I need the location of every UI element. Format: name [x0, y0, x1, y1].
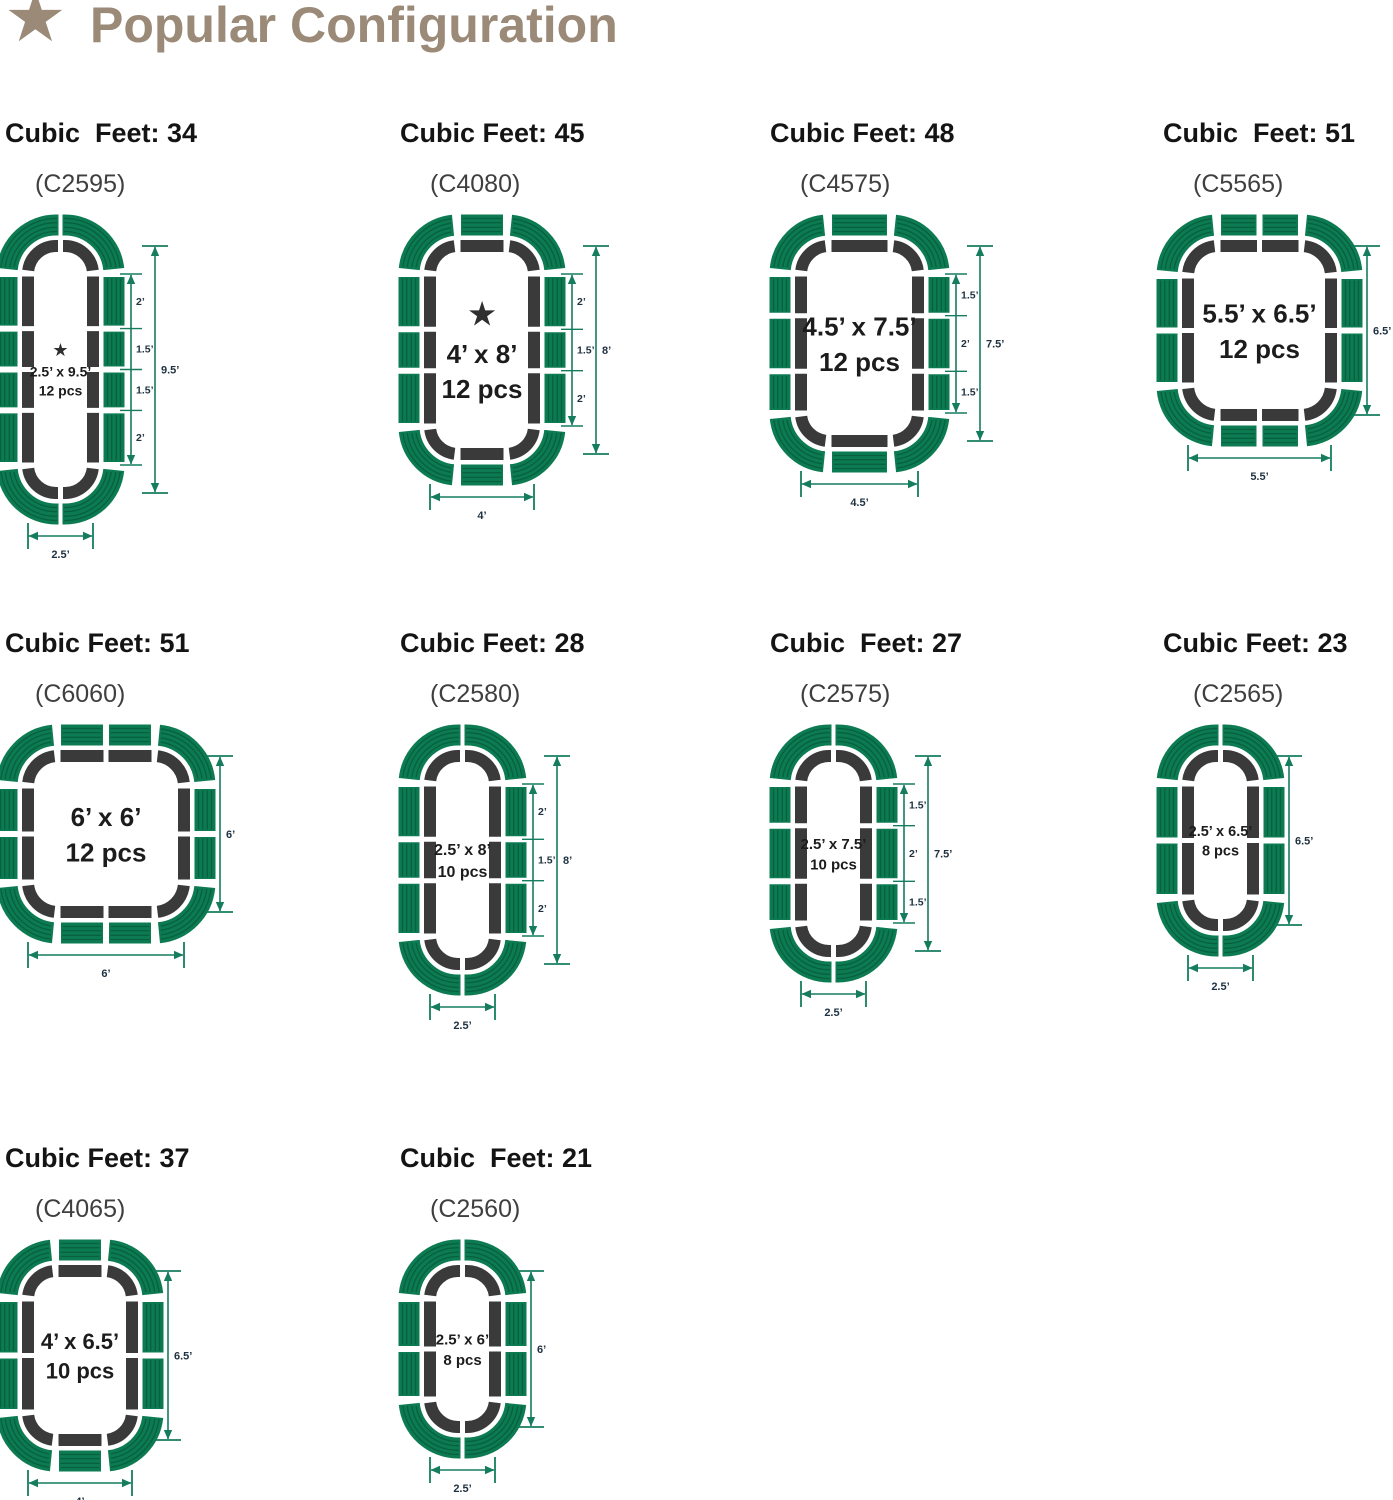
bed-labels: 4’ x 6.5’10 pcs [41, 1329, 119, 1384]
bed-panels [1, 729, 212, 940]
bed-size-label: 2.5’ x 9.5’ [30, 364, 92, 380]
bed-outline [801, 756, 866, 951]
bed-size-label: 4’ x 6.5’ [41, 1329, 119, 1354]
config-diagram: 4’ x 6.5’10 pcs6.5’4’ [0, 1233, 214, 1500]
config-diagram: 2.5’ x 7.5’10 pcs1.5’2’1.5’7.5’2.5’ [767, 718, 984, 1039]
segment-dimension-label: 1.5’ [577, 345, 595, 357]
width-dimension-label: 6’ [101, 968, 110, 980]
config-model-label: (C4575) [800, 170, 890, 199]
config-diagram: 6’ x 6’12 pcs6’6’ [0, 718, 266, 1000]
star-icon: ★ [4, 0, 67, 52]
config-diagram: 5.5’ x 6.5’12 pcs6.5’5.5’ [1154, 208, 1393, 503]
config-heading: Cubic Feet: 21 [400, 1143, 592, 1174]
config-heading: Cubic Feet: 34 [5, 118, 197, 149]
config-diagram: 2.5’ x 6’8 pcs6’2.5’ [396, 1233, 577, 1500]
segment-dimension-label: 1.5’ [909, 897, 927, 909]
height-dimension-label: 6.5’ [174, 1351, 192, 1363]
height-dimension-label: 8’ [602, 345, 611, 357]
width-dimension-label: 2.5’ [453, 1483, 471, 1495]
segment-dimension-label: 2’ [136, 432, 145, 444]
bed-size-label: 4.5’ x 7.5’ [802, 312, 916, 342]
bed-panels [403, 729, 523, 992]
config-diagram: ★4’ x 8’12 pcs2’1.5’2’8’4’ [396, 208, 652, 542]
bed-outline [430, 756, 495, 964]
bed-pcs-label: 12 pcs [1219, 334, 1300, 364]
width-dimension-label: 4’ [477, 510, 486, 522]
segment-dimension-label: 2’ [909, 848, 918, 860]
bed-labels: 2.5’ x 8’10 pcs [434, 842, 491, 881]
config-heading: Cubic Feet: 51 [5, 628, 190, 659]
width-dimension-label: 2.5’ [1211, 981, 1229, 993]
config-model-label: (C4065) [35, 1195, 125, 1224]
config-heading: Cubic Feet: 51 [1163, 118, 1355, 149]
bed-pcs-label: 12 pcs [66, 837, 147, 867]
config-model-label: (C6060) [35, 680, 125, 709]
config-diagram: 4.5’ x 7.5’12 pcs1.5’2’1.5’7.5’4.5’ [767, 208, 1036, 529]
star-icon: ★ [52, 340, 68, 360]
bed-pcs-label: 10 pcs [46, 1359, 115, 1384]
segment-dimension-label: 1.5’ [136, 384, 154, 396]
config-model-label: (C2580) [430, 680, 520, 709]
bed-outline [28, 756, 184, 912]
segment-dimension-label: 2’ [538, 806, 547, 818]
bed-labels: 2.5’ x 7.5’10 pcs [801, 836, 867, 873]
width-dimension-label: 2.5’ [824, 1007, 842, 1019]
bed-outline [1188, 756, 1253, 925]
bed-outline [1188, 246, 1331, 415]
bed-outline [28, 1271, 132, 1440]
height-dimension-label: 6’ [537, 1344, 546, 1356]
config-heading: Cubic Feet: 23 [1163, 628, 1348, 659]
config-diagram: ★2.5’ x 9.5’12 pcs2’1.5’1.5’2’9.5’2.5’ [0, 208, 211, 581]
config-model-label: (C2560) [430, 1195, 520, 1224]
segment-dimension-label: 1.5’ [961, 387, 979, 399]
width-dimension-label: 4’ [75, 1496, 84, 1500]
config-heading: Cubic Feet: 45 [400, 118, 585, 149]
bed-size-label: 2.5’ x 7.5’ [801, 836, 867, 853]
page-title: Popular Configuration [90, 0, 618, 54]
bed-outline [801, 246, 918, 441]
config-diagram: 2.5’ x 8’10 pcs2’1.5’2’8’2.5’ [396, 718, 613, 1052]
segment-dimension-label: 2’ [577, 393, 586, 405]
bed-size-label: 6’ x 6’ [71, 802, 142, 832]
config-heading: Cubic Feet: 48 [770, 118, 955, 149]
bed-labels: ★4’ x 8’12 pcs [442, 295, 523, 404]
config-heading: Cubic Feet: 27 [770, 628, 962, 659]
bed-pcs-label: 12 pcs [442, 374, 523, 404]
bed-labels: ★2.5’ x 9.5’12 pcs [30, 340, 92, 398]
bed-pcs-label: 12 pcs [819, 347, 900, 377]
height-dimension-label: 6.5’ [1373, 326, 1391, 338]
dimensions: 6’2.5’ [430, 1271, 546, 1495]
height-dimension-label: 8’ [563, 855, 572, 867]
bed-labels: 2.5’ x 6.5’8 pcs [1189, 824, 1253, 860]
segment-dimension-label: 2’ [577, 296, 586, 308]
config-model-label: (C5565) [1193, 170, 1283, 199]
segment-dimension-label: 1.5’ [136, 344, 154, 356]
bed-pcs-label: 10 pcs [810, 856, 857, 873]
bed-pcs-label: 12 pcs [39, 382, 83, 398]
bed-pcs-label: 8 pcs [1202, 844, 1239, 860]
width-dimension-label: 2.5’ [453, 1020, 471, 1032]
config-heading: Cubic Feet: 28 [400, 628, 585, 659]
height-dimension-label: 6.5’ [1295, 836, 1313, 848]
bed-panels [774, 729, 894, 979]
config-heading: Cubic Feet: 37 [5, 1143, 190, 1174]
bed-labels: 4.5’ x 7.5’12 pcs [802, 312, 916, 377]
bed-outline [430, 1271, 495, 1427]
bed-pcs-label: 8 pcs [443, 1352, 481, 1369]
config-model-label: (C2565) [1193, 680, 1283, 709]
height-dimension-label: 7.5’ [986, 339, 1004, 351]
height-dimension-label: 7.5’ [934, 849, 952, 861]
bed-size-label: 2.5’ x 6.5’ [1189, 824, 1253, 840]
segment-dimension-label: 1.5’ [538, 855, 556, 867]
bed-panels [403, 1244, 523, 1455]
bed-labels: 5.5’ x 6.5’12 pcs [1202, 299, 1316, 364]
bed-panels [1161, 219, 1359, 443]
width-dimension-label: 4.5’ [850, 497, 868, 509]
star-icon: ★ [467, 295, 497, 333]
config-diagram: 2.5’ x 6.5’8 pcs6.5’2.5’ [1154, 718, 1335, 1013]
height-dimension-label: 6’ [226, 829, 235, 841]
height-dimension-label: 9.5’ [161, 365, 179, 377]
segment-dimension-label: 1.5’ [961, 289, 979, 301]
popular-configuration-infographic: ★ Popular Configuration Cubic Feet: 34(C… [0, 0, 1393, 1500]
segment-dimension-label: 2’ [961, 338, 970, 350]
width-dimension-label: 5.5’ [1250, 471, 1268, 483]
bed-panels [1, 1244, 160, 1468]
bed-pcs-label: 10 pcs [438, 864, 488, 881]
segment-dimension-label: 2’ [136, 296, 145, 308]
bed-size-label: 2.5’ x 8’ [434, 842, 491, 859]
bed-labels: 2.5’ x 6’8 pcs [436, 1332, 489, 1369]
bed-size-label: 2.5’ x 6’ [436, 1332, 489, 1349]
bed-size-label: 4’ x 8’ [447, 339, 518, 369]
config-model-label: (C4080) [430, 170, 520, 199]
bed-labels: 6’ x 6’12 pcs [66, 802, 147, 867]
segment-dimension-label: 2’ [538, 903, 547, 915]
bed-size-label: 5.5’ x 6.5’ [1202, 299, 1316, 329]
config-model-label: (C2595) [35, 170, 125, 199]
bed-panels [1161, 729, 1281, 953]
width-dimension-label: 2.5’ [51, 549, 69, 561]
segment-dimension-label: 1.5’ [909, 799, 927, 811]
config-model-label: (C2575) [800, 680, 890, 709]
